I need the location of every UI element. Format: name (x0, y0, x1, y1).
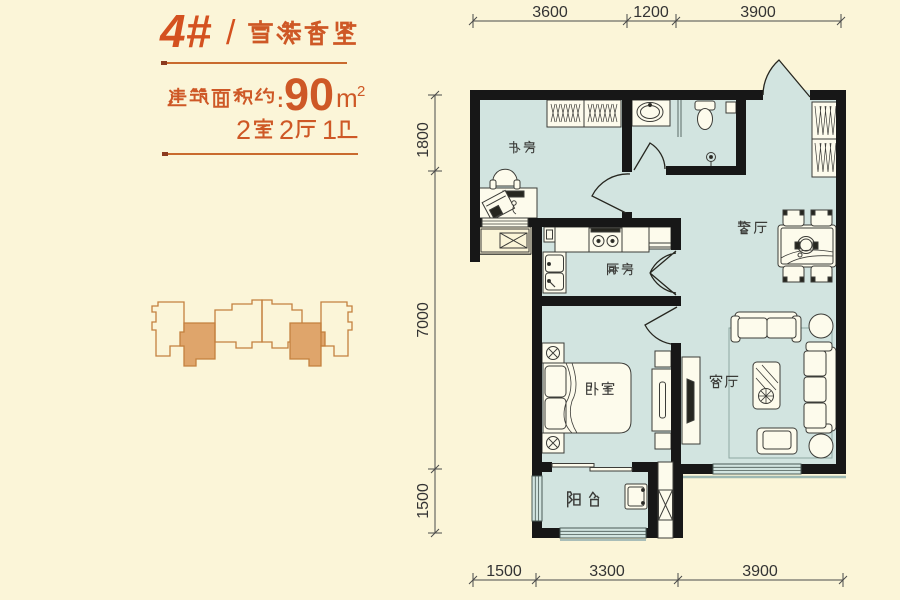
svg-text:3900: 3900 (740, 4, 776, 21)
svg-text::: : (277, 90, 284, 112)
svg-text:3900: 3900 (742, 563, 778, 580)
svg-text:1200: 1200 (633, 4, 669, 21)
svg-text:m: m (336, 83, 358, 113)
svg-text:2: 2 (279, 115, 294, 145)
svg-text:3600: 3600 (532, 4, 568, 21)
svg-text:90: 90 (284, 69, 334, 120)
svg-text:2: 2 (236, 115, 251, 145)
svg-text:1: 1 (322, 115, 337, 145)
svg-text:3300: 3300 (589, 563, 625, 580)
svg-text:1800: 1800 (415, 122, 432, 158)
svg-text:1500: 1500 (415, 483, 432, 519)
svg-text:1500: 1500 (486, 563, 522, 580)
svg-text:4#: 4# (159, 5, 212, 57)
svg-text:2: 2 (357, 83, 365, 100)
svg-text:7000: 7000 (415, 302, 432, 338)
svg-text:/: / (226, 14, 236, 52)
